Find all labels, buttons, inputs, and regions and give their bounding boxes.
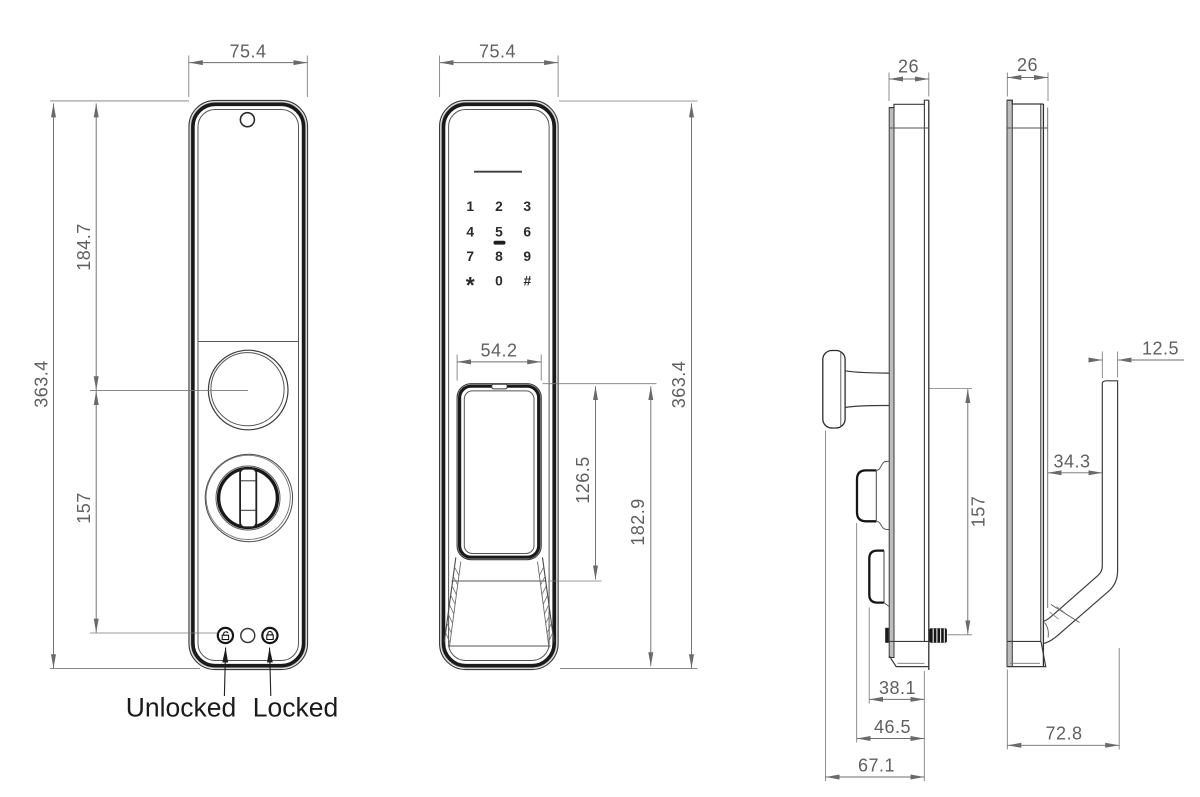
svg-text:363.4: 363.4 — [669, 361, 689, 409]
svg-text:67.1: 67.1 — [858, 756, 895, 776]
svg-text:72.8: 72.8 — [1045, 724, 1082, 744]
svg-text:8: 8 — [495, 249, 503, 264]
svg-text:157: 157 — [74, 492, 94, 524]
svg-text:1: 1 — [466, 199, 474, 214]
svg-text:26: 26 — [1017, 55, 1038, 75]
svg-text:4: 4 — [466, 224, 474, 239]
svg-text:184.7: 184.7 — [74, 223, 94, 271]
svg-text:#: # — [524, 273, 532, 289]
svg-text:38.1: 38.1 — [879, 678, 916, 698]
svg-text:5: 5 — [495, 224, 503, 239]
svg-text:12.5: 12.5 — [1142, 339, 1179, 359]
svg-text:26: 26 — [898, 57, 919, 77]
svg-text:75.4: 75.4 — [229, 42, 266, 62]
svg-text:157: 157 — [969, 496, 989, 528]
svg-text:182.9: 182.9 — [628, 498, 648, 546]
svg-text:126.5: 126.5 — [573, 456, 593, 504]
svg-text:9: 9 — [523, 249, 531, 264]
svg-text:363.4: 363.4 — [32, 360, 52, 408]
svg-text:Unlocked: Unlocked — [126, 693, 236, 723]
svg-text:75.4: 75.4 — [479, 42, 516, 62]
svg-text:*: * — [466, 272, 475, 298]
svg-text:34.3: 34.3 — [1053, 451, 1090, 471]
svg-text:6: 6 — [523, 224, 531, 239]
svg-text:3: 3 — [523, 199, 531, 214]
svg-text:46.5: 46.5 — [874, 717, 911, 737]
svg-text:0: 0 — [495, 273, 503, 288]
svg-text:2: 2 — [495, 199, 503, 214]
svg-text:54.2: 54.2 — [480, 341, 517, 361]
svg-text:Locked: Locked — [253, 693, 338, 723]
svg-text:7: 7 — [466, 249, 474, 264]
